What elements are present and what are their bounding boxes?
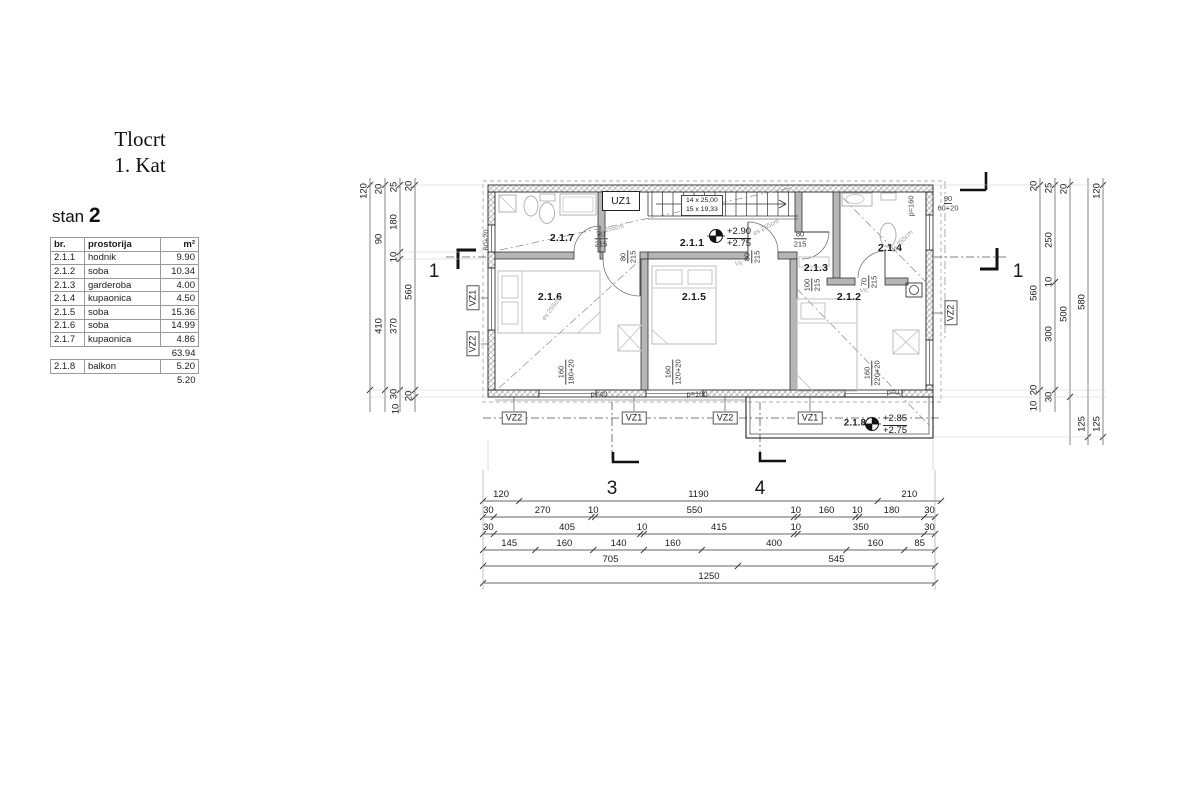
room-label-2-1-8: 2.1.8 bbox=[844, 418, 866, 429]
exterior-wall bbox=[488, 192, 495, 225]
dim-label: 10 bbox=[790, 505, 801, 516]
room-label-2-1-3: 2.1.3 bbox=[804, 262, 828, 274]
window-sill-label: p=100 bbox=[686, 390, 707, 399]
door-width: 160 bbox=[862, 367, 871, 380]
dim-label: 160 bbox=[819, 505, 835, 516]
interior-wall bbox=[885, 278, 908, 285]
bed-fold-line bbox=[797, 375, 813, 391]
dim-label: 30 bbox=[483, 522, 494, 533]
door-height: 215 bbox=[811, 279, 821, 292]
door-width: 160 bbox=[556, 366, 565, 379]
elevation-lower: +2.75 bbox=[727, 238, 751, 249]
dim-label: 120 bbox=[359, 183, 370, 199]
section-marker-bracket bbox=[760, 452, 786, 461]
washing-machine-drum bbox=[910, 286, 919, 295]
toilet-tank bbox=[540, 194, 555, 201]
level-marker-quadrant bbox=[710, 236, 717, 243]
dim-label: 125 bbox=[1077, 416, 1088, 432]
door-size-label: 160180+20 bbox=[557, 359, 575, 384]
dim-label: 270 bbox=[535, 505, 551, 516]
dim-label: 140 bbox=[611, 538, 627, 549]
interior-wall bbox=[790, 259, 797, 390]
dim-label: 500 bbox=[1059, 306, 1070, 322]
dim-label: 560 bbox=[1029, 285, 1040, 301]
dim-label: 10 bbox=[389, 252, 400, 263]
vz-tag: VZ2 bbox=[502, 412, 527, 425]
exterior-wall bbox=[902, 390, 933, 397]
dim-label: 30 bbox=[924, 522, 935, 533]
dim-label: 125 bbox=[1092, 416, 1103, 432]
slope-diagonal bbox=[797, 289, 930, 426]
dim-label: 30 bbox=[483, 505, 494, 516]
level-marker-quadrant bbox=[872, 418, 879, 425]
dim-label: 550 bbox=[687, 505, 703, 516]
interior-wall bbox=[648, 252, 748, 259]
dim-label: 20 bbox=[404, 181, 415, 192]
level-marker-quadrant bbox=[716, 230, 723, 237]
pillow-symbol bbox=[502, 276, 518, 298]
pillow-symbol bbox=[502, 302, 518, 324]
toilet-tank bbox=[881, 193, 896, 200]
door-height: 215 bbox=[868, 276, 878, 289]
dim-label: 415 bbox=[711, 522, 727, 533]
section-number-1-left: 1 bbox=[429, 261, 440, 283]
interior-wall bbox=[795, 192, 802, 232]
door-width: 70 bbox=[859, 278, 868, 286]
dim-label: 10 bbox=[637, 522, 648, 533]
door-size-label: 100215 bbox=[803, 279, 821, 292]
dim-label: 20 bbox=[1029, 181, 1040, 192]
dim-label: 370 bbox=[389, 318, 400, 334]
section-marker-bracket bbox=[613, 452, 639, 462]
dim-label: 20 bbox=[404, 391, 415, 402]
dim-label: 10 bbox=[1029, 401, 1040, 412]
door-vk-label: VK bbox=[735, 261, 744, 268]
vz-tag: VZ2 bbox=[713, 412, 738, 425]
door-size-label: 70215 bbox=[860, 276, 878, 289]
dim-label: 160 bbox=[665, 538, 681, 549]
bed-fold-line bbox=[652, 330, 668, 344]
door-size-label: 80215 bbox=[619, 251, 637, 264]
dim-label: 210 bbox=[901, 489, 917, 500]
door-height: 215 bbox=[595, 238, 608, 248]
door-size-label: 80215 bbox=[794, 230, 807, 248]
door-height: 180+20 bbox=[565, 359, 575, 384]
wall-window-label: p=160 bbox=[907, 195, 916, 216]
dim-label: 10 bbox=[1044, 277, 1055, 288]
wall-window-label: 90 bbox=[944, 194, 952, 204]
section-number-4: 4 bbox=[755, 478, 766, 500]
bathtub-inner bbox=[563, 197, 593, 212]
dim-label: 30 bbox=[924, 505, 935, 516]
door-vk-label: VK bbox=[860, 288, 869, 295]
exterior-wall bbox=[488, 330, 495, 390]
room-label-2-1-1: 2.1.1 bbox=[680, 237, 704, 249]
exterior-wall bbox=[926, 192, 933, 215]
dim-label: 120 bbox=[493, 489, 509, 500]
dim-label: 180 bbox=[389, 214, 400, 230]
dim-label: 350 bbox=[853, 522, 869, 533]
interior-wall bbox=[641, 259, 648, 390]
section-marker-bracket bbox=[980, 248, 997, 269]
vz-tag: VZ1 bbox=[467, 286, 480, 311]
bed-symbol bbox=[652, 266, 716, 344]
dim-label: 250 bbox=[1044, 232, 1055, 248]
dim-label: 20 bbox=[374, 184, 385, 195]
door-size-label: 160120+20 bbox=[664, 359, 682, 384]
wall-window-label: 60+20 bbox=[482, 229, 491, 250]
section-number-3: 3 bbox=[607, 478, 618, 500]
wall-window-label: 60+20 bbox=[937, 204, 958, 213]
dim-label: 405 bbox=[559, 522, 575, 533]
dim-label: 25 bbox=[389, 182, 400, 193]
interior-wall bbox=[600, 252, 603, 259]
toilet-symbol bbox=[540, 203, 555, 224]
door-height: 120+20 bbox=[672, 359, 682, 384]
room-label-2-1-7: 2.1.7 bbox=[550, 232, 574, 244]
dim-label: 1250 bbox=[698, 571, 719, 582]
exterior-step-symbol bbox=[960, 172, 986, 190]
exterior-wall bbox=[926, 250, 933, 340]
dim-label: 400 bbox=[766, 538, 782, 549]
dim-label: 120 bbox=[1092, 183, 1103, 199]
dim-label: 85 bbox=[914, 538, 925, 549]
dim-label: 20 bbox=[1029, 385, 1040, 396]
room-label-2-1-5: 2.1.5 bbox=[682, 291, 706, 303]
bed-fold-line bbox=[578, 312, 600, 333]
interior-wall bbox=[495, 252, 574, 259]
stair-note-line2: 15 x 19,33 bbox=[686, 206, 718, 215]
door-height: 215 bbox=[627, 251, 637, 264]
bed-symbol bbox=[797, 299, 857, 391]
section-number-1-right: 1 bbox=[1013, 261, 1024, 283]
door-height: 215 bbox=[751, 251, 761, 264]
interior-wall bbox=[833, 192, 840, 278]
interior-wall bbox=[827, 278, 855, 285]
dim-label: 90 bbox=[374, 234, 385, 245]
dim-label: 160 bbox=[867, 538, 883, 549]
dim-label: 25 bbox=[1044, 183, 1055, 194]
level-marker-quadrant bbox=[866, 424, 873, 431]
shower-diagonal bbox=[499, 195, 516, 212]
dim-label: 30 bbox=[389, 389, 400, 400]
dim-label: 545 bbox=[829, 554, 845, 565]
interior-wall bbox=[778, 252, 797, 259]
room-label-2-1-2: 2.1.2 bbox=[837, 291, 861, 303]
door-width: 100 bbox=[802, 279, 811, 292]
stair-note-line1: 14 x 25,00 bbox=[686, 197, 718, 206]
stair-id-box: UZ1 bbox=[602, 191, 640, 211]
vz-tag: VZ1 bbox=[622, 412, 647, 425]
pillow-symbol bbox=[688, 270, 712, 284]
dim-label: 10 bbox=[588, 505, 599, 516]
floor-plan-sheet: Tlocrt 1. Kat stan 2 br. prostorija m² 2… bbox=[0, 0, 1200, 795]
dim-label: 410 bbox=[374, 318, 385, 334]
dim-label: 1190 bbox=[688, 489, 708, 500]
door-width: 80 bbox=[796, 229, 804, 238]
pillow-symbol bbox=[656, 270, 682, 284]
door-size-label: 160220+20 bbox=[863, 360, 881, 385]
door-size-label: 80215 bbox=[743, 251, 761, 264]
dim-label: 705 bbox=[603, 554, 619, 565]
dim-label: 560 bbox=[404, 284, 415, 300]
door-width: 160 bbox=[663, 366, 672, 379]
dim-label: 300 bbox=[1044, 326, 1055, 342]
door-swing-arc bbox=[858, 251, 885, 278]
vz-tag: VZ2 bbox=[945, 301, 958, 326]
sink-symbol bbox=[846, 195, 864, 204]
sink-symbol bbox=[524, 196, 538, 216]
exterior-wall bbox=[926, 385, 933, 390]
interior-wall bbox=[640, 252, 648, 259]
door-height: 215 bbox=[794, 238, 807, 248]
dim-label: 10 bbox=[391, 404, 402, 415]
door-width: 80 bbox=[618, 253, 627, 261]
dim-label: 145 bbox=[501, 538, 517, 549]
dim-label: 10 bbox=[790, 522, 801, 533]
elevation-lower: +2.75 bbox=[883, 425, 907, 436]
door-swing-arc bbox=[603, 259, 640, 296]
window-sill-label: p=0 bbox=[887, 388, 900, 397]
exterior-wall bbox=[488, 252, 495, 268]
elevation-main: +2.90+2.75 bbox=[727, 227, 751, 249]
exterior-wall bbox=[488, 185, 933, 192]
window-sill-label: p=40 bbox=[591, 390, 608, 399]
stair-note: 14 x 25,0015 x 19,33 bbox=[681, 195, 723, 216]
dim-label: 580 bbox=[1077, 294, 1088, 310]
dim-label: 20 bbox=[1059, 184, 1070, 195]
dim-label: 180 bbox=[884, 505, 900, 516]
door-height: 220+20 bbox=[871, 360, 881, 385]
exterior-wall bbox=[488, 390, 539, 397]
dim-label: 30 bbox=[1044, 392, 1055, 403]
vz-tag: VZ1 bbox=[798, 412, 823, 425]
dim-label: 160 bbox=[556, 538, 572, 549]
section-marker-bracket bbox=[458, 250, 476, 269]
dim-label: 10 bbox=[852, 505, 863, 516]
elevation-balcony: +2.85+2.75 bbox=[883, 414, 907, 436]
vz-tag: VZ2 bbox=[467, 332, 480, 357]
